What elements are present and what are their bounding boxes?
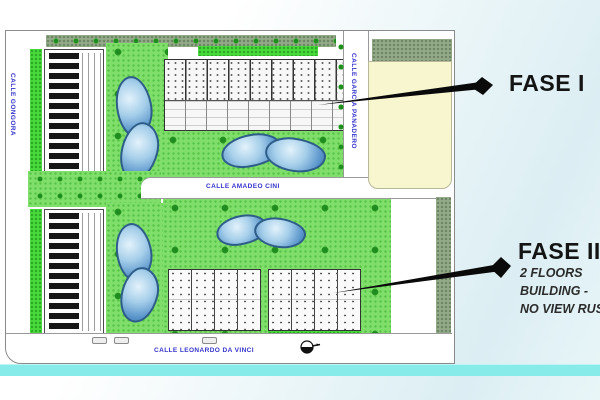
street-label-panadero: CALLE GARCIA PANADERO	[350, 53, 357, 175]
fase1-building	[164, 59, 344, 131]
street-label-amadeo-cini: CALLE AMADEO CINI	[206, 183, 280, 190]
pool-upper-left	[114, 76, 160, 181]
parked-car	[202, 337, 217, 344]
fase2-note-line: NO VIEW RUSH	[520, 302, 600, 316]
pool-lower-left	[114, 223, 160, 323]
lawn-strip-lower-left	[30, 209, 42, 335]
lawn-strip-fase1	[198, 46, 318, 56]
hedge-strip-right	[436, 197, 451, 333]
pool-fase1	[221, 132, 326, 174]
street-label-leonardo-da-vinci: CALLE LEONARDO DA VINCI	[154, 347, 254, 354]
fase1-units	[165, 60, 343, 101]
site-plan-page: CALLE GONGORA CALLE AMADEO CI	[0, 0, 600, 400]
pool-lobe	[263, 134, 328, 176]
building-block-upper-left	[44, 49, 104, 189]
parked-car	[92, 337, 107, 344]
fase2-label: FASE II	[518, 238, 600, 265]
fase2-building-right	[268, 269, 361, 331]
tree-row	[30, 174, 158, 184]
pool-lobe	[252, 215, 308, 252]
fase2-arrow-head	[490, 257, 511, 278]
tree-row	[46, 36, 336, 46]
fase1-arrow-head	[471, 77, 493, 95]
fase1-label: FASE I	[509, 70, 585, 97]
tree-column	[336, 37, 346, 177]
fase2-note-line: BUILDING -	[520, 284, 588, 298]
fase1-terraces	[165, 101, 343, 130]
site-plan: CALLE GONGORA CALLE AMADEO CI	[5, 30, 455, 364]
parked-car	[114, 337, 129, 344]
fase2-note-line: 2 FLOORS	[520, 266, 583, 280]
pool-fase2	[216, 213, 306, 251]
fase2-building-left	[168, 269, 261, 331]
parcel-hedge	[372, 39, 452, 61]
tree-row	[30, 191, 158, 201]
compass-north-icon	[299, 339, 321, 355]
lawn-strip-upper-left	[30, 49, 42, 184]
street-label-gongora: CALLE GONGORA	[9, 73, 16, 193]
adjacent-parcel	[368, 61, 452, 189]
cyan-border-strip	[0, 364, 600, 376]
building-block-lower-left	[44, 209, 104, 335]
